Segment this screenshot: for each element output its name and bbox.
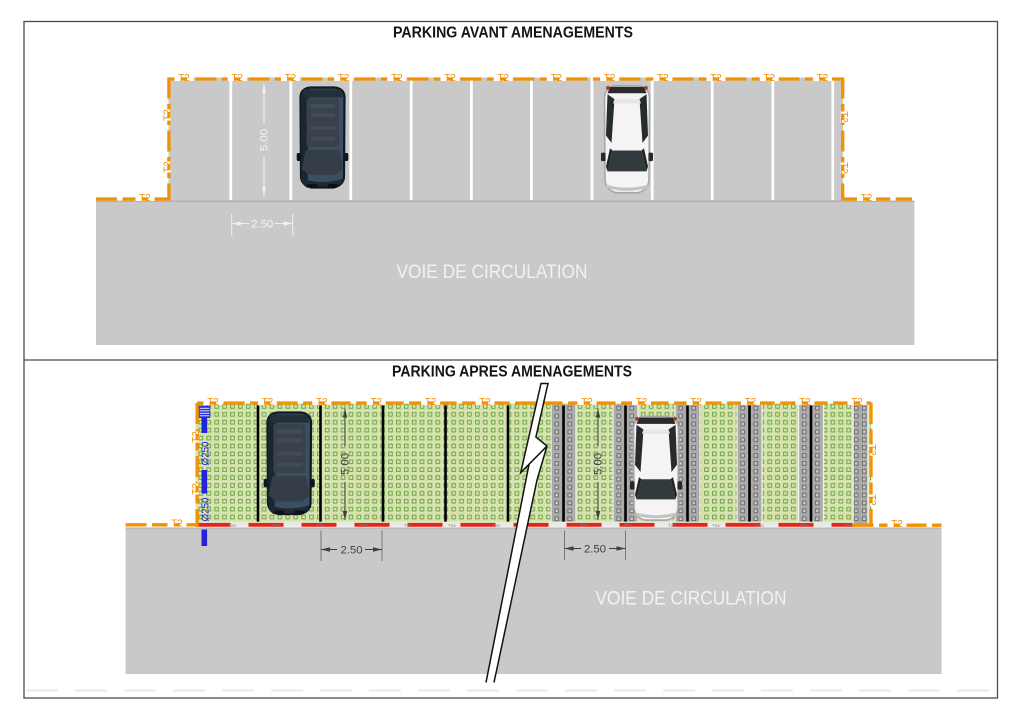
svg-text:T2: T2 (391, 73, 403, 84)
svg-text:T2: T2 (285, 73, 297, 84)
svg-text:T2: T2 (745, 397, 757, 408)
svg-text:T2a: T2a (756, 523, 764, 528)
svg-text:T2: T2 (163, 109, 174, 121)
svg-text:T2: T2 (799, 397, 811, 408)
svg-text:VOIE DE CIRCULATION: VOIE DE CIRCULATION (397, 261, 588, 283)
svg-text:T2a: T2a (448, 523, 456, 528)
svg-text:PARKING APRES AMENAGEMENTS: PARKING APRES AMENAGEMENTS (392, 364, 632, 381)
svg-text:T2a: T2a (580, 523, 588, 528)
svg-text:T2: T2 (444, 73, 456, 84)
svg-text:T2: T2 (163, 161, 174, 173)
svg-text:VOIE DE CIRCULATION: VOIE DE CIRCULATION (596, 588, 787, 610)
svg-text:T2: T2 (710, 73, 722, 84)
svg-text:5.00: 5.00 (593, 453, 605, 475)
svg-text:T2a: T2a (228, 523, 236, 528)
svg-text:Ø250: Ø250 (201, 497, 212, 522)
svg-text:T2: T2 (370, 397, 382, 408)
svg-text:T2: T2 (604, 73, 616, 84)
svg-text:T2: T2 (316, 397, 328, 408)
svg-text:T2: T2 (425, 397, 437, 408)
svg-text:T2: T2 (817, 73, 829, 84)
svg-text:5.00: 5.00 (259, 129, 271, 151)
svg-text:T2: T2 (231, 73, 243, 84)
svg-text:T2: T2 (581, 397, 593, 408)
svg-text:Ø250: Ø250 (201, 441, 212, 466)
svg-text:2.50: 2.50 (341, 545, 363, 557)
svg-text:T2a: T2a (844, 523, 852, 528)
svg-text:T2: T2 (139, 193, 151, 204)
svg-text:T2: T2 (866, 444, 877, 456)
svg-text:T2: T2 (861, 193, 873, 204)
svg-text:T2: T2 (690, 397, 702, 408)
svg-text:T2a: T2a (492, 523, 500, 528)
svg-text:2.50: 2.50 (584, 544, 606, 556)
svg-text:T2a: T2a (360, 523, 368, 528)
svg-text:T2: T2 (171, 519, 183, 530)
svg-text:T2a: T2a (272, 523, 280, 528)
svg-text:T2: T2 (479, 397, 491, 408)
svg-text:T2: T2 (178, 73, 190, 84)
svg-text:T2: T2 (551, 73, 563, 84)
svg-text:T2: T2 (657, 73, 669, 84)
svg-text:T2: T2 (891, 519, 903, 530)
svg-text:T2a: T2a (668, 523, 676, 528)
svg-text:T2a: T2a (624, 523, 632, 528)
svg-text:T2: T2 (636, 397, 648, 408)
svg-text:T2: T2 (763, 73, 775, 84)
svg-text:T2: T2 (262, 397, 274, 408)
svg-text:5.00: 5.00 (340, 453, 352, 475)
svg-text:T2: T2 (497, 73, 509, 84)
svg-text:T2a: T2a (712, 523, 720, 528)
svg-text:T2a: T2a (316, 523, 324, 528)
svg-text:T2: T2 (338, 73, 350, 84)
svg-text:T2: T2 (851, 397, 863, 408)
svg-text:T2: T2 (838, 111, 849, 123)
svg-text:2.50: 2.50 (251, 219, 273, 231)
svg-text:T2: T2 (191, 483, 202, 495)
svg-text:T2: T2 (191, 431, 202, 443)
svg-text:T2a: T2a (404, 523, 412, 528)
svg-text:T2a: T2a (800, 523, 808, 528)
svg-text:T2: T2 (838, 162, 849, 174)
svg-text:PARKING AVANT AMENAGEMENTS: PARKING AVANT AMENAGEMENTS (393, 25, 633, 42)
svg-text:T2: T2 (866, 494, 877, 506)
